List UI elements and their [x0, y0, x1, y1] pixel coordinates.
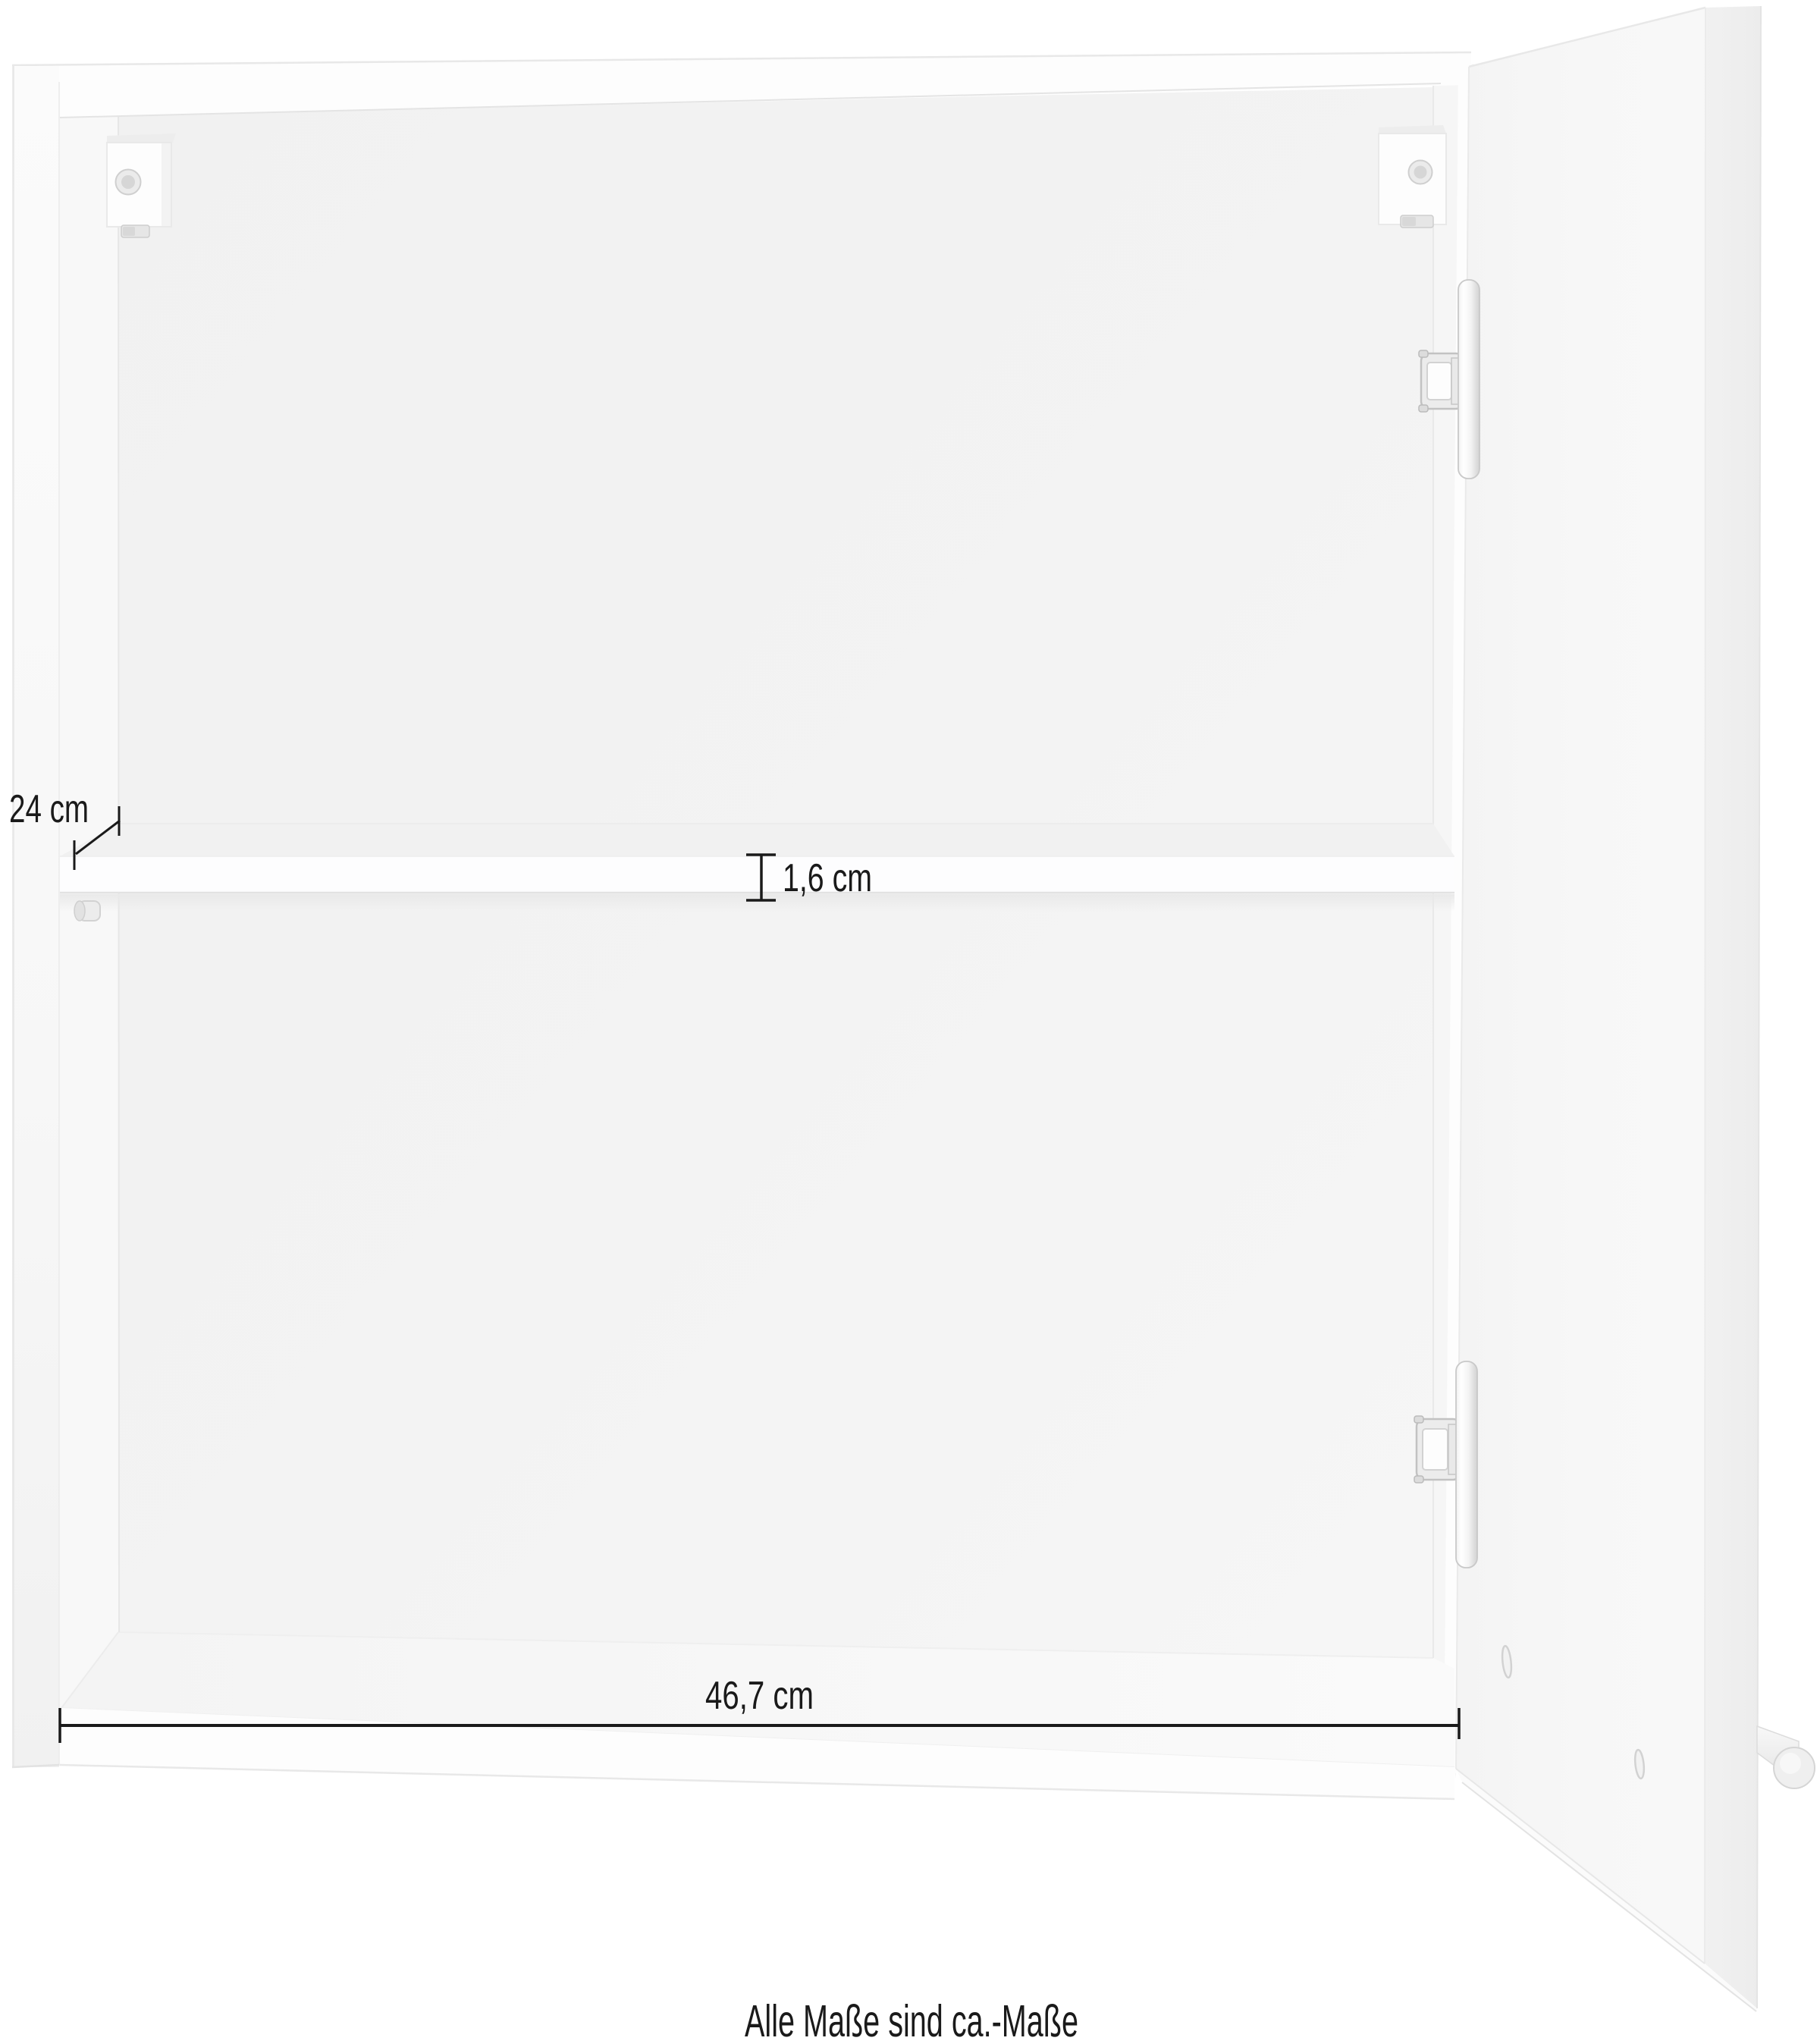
svg-text:24 cm: 24 cm: [9, 787, 89, 831]
svg-text:Alle Maße sind ca.-Maße: Alle Maße sind ca.-Maße: [745, 1996, 1078, 2044]
svg-text:1,6 cm: 1,6 cm: [783, 856, 872, 900]
svg-text:46,7 cm: 46,7 cm: [705, 1674, 814, 1718]
